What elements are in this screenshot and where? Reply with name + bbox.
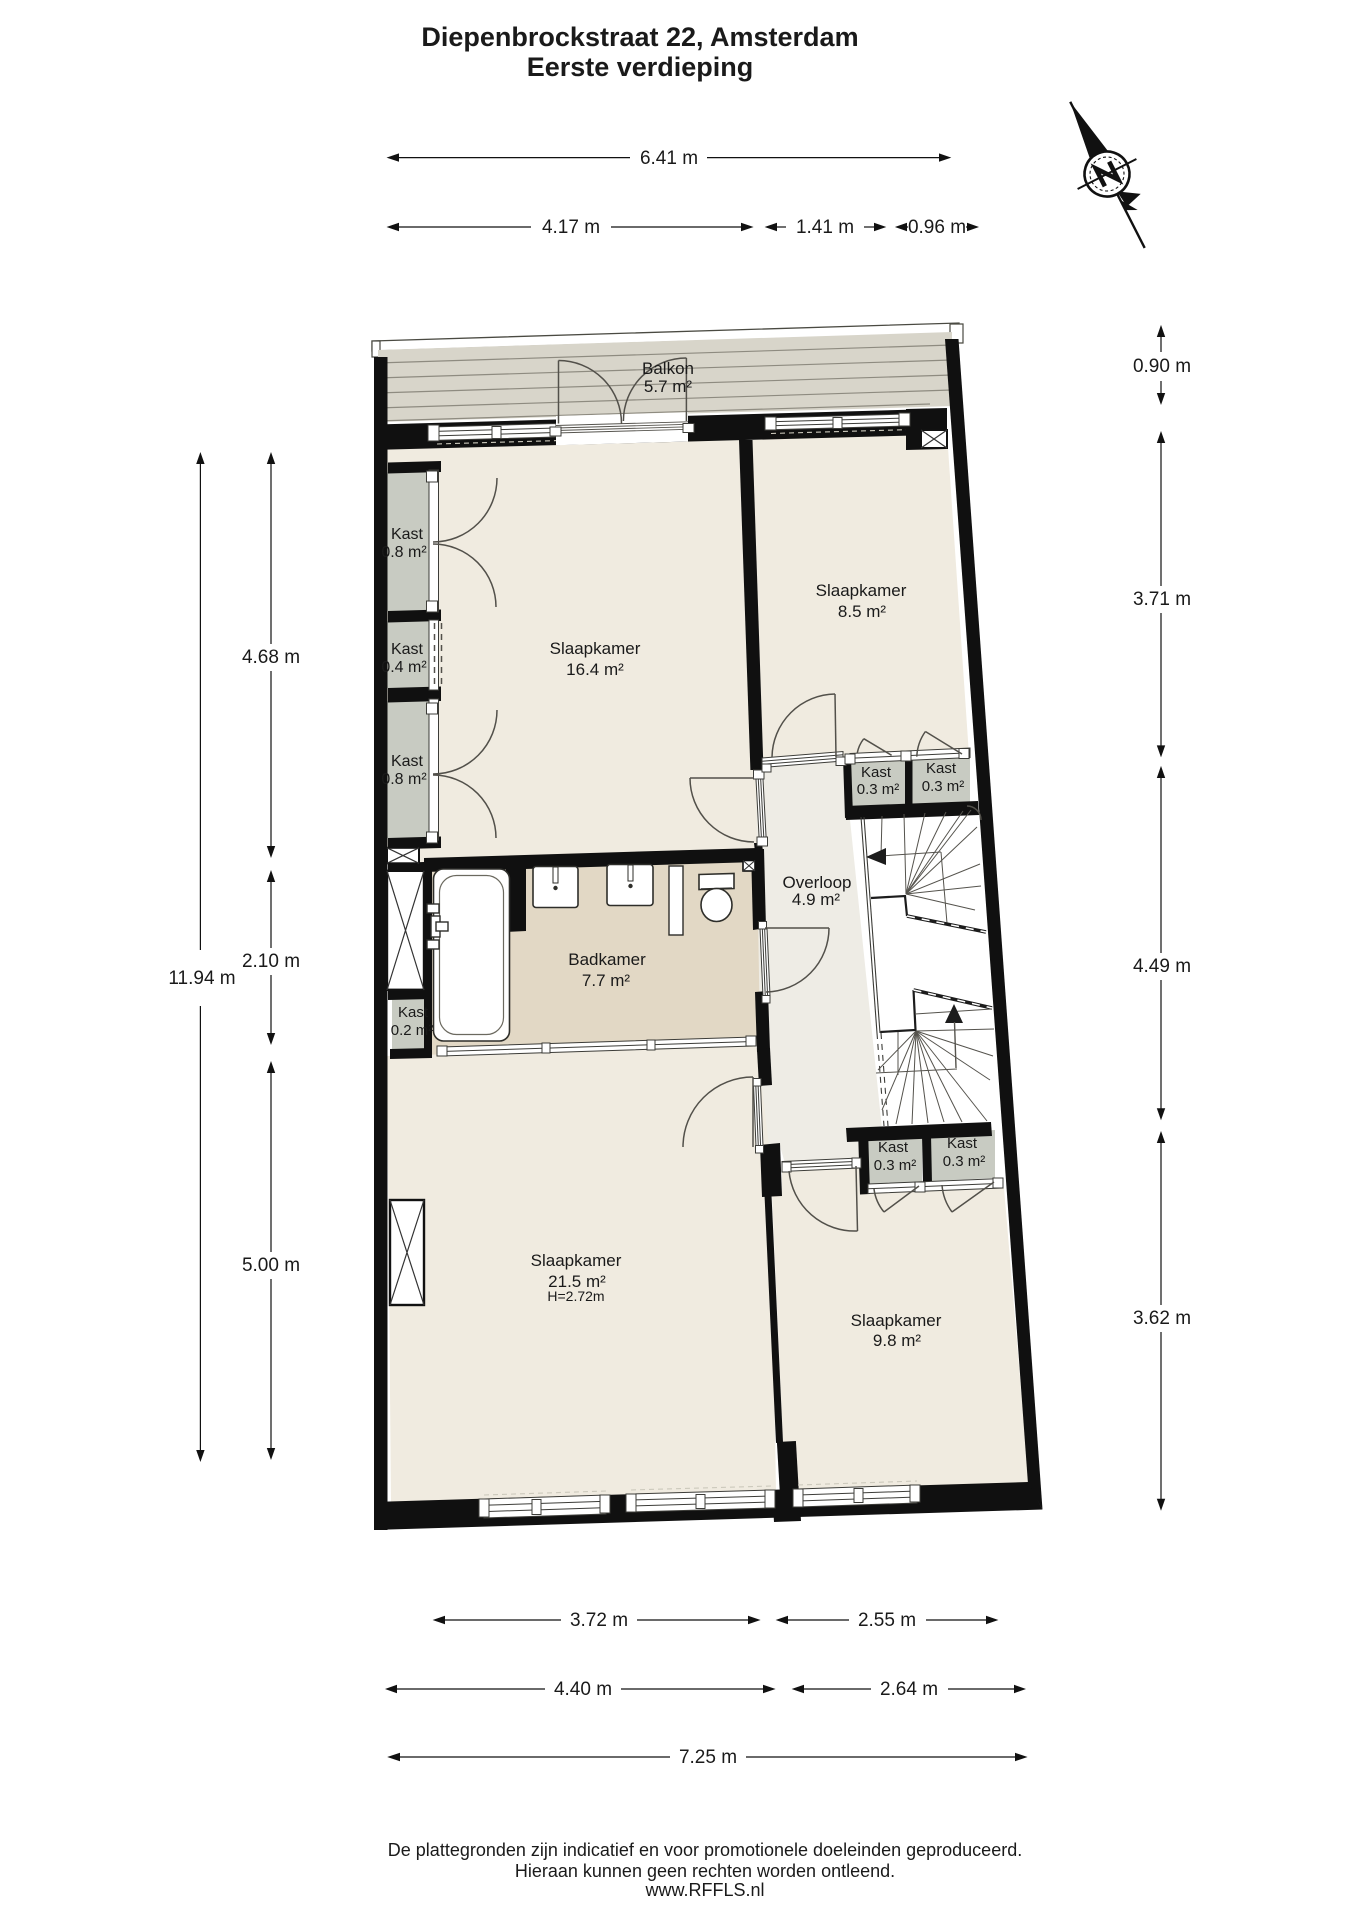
svg-text:Kast: Kast bbox=[926, 760, 957, 777]
svg-text:9.8 m²: 9.8 m² bbox=[873, 1331, 922, 1350]
svg-text:Kast: Kast bbox=[398, 1004, 429, 1021]
svg-text:16.4 m²: 16.4 m² bbox=[566, 660, 624, 679]
svg-text:2.10 m: 2.10 m bbox=[242, 951, 300, 972]
svg-text:1.41 m: 1.41 m bbox=[796, 217, 854, 238]
svg-text:0.3 m²: 0.3 m² bbox=[943, 1153, 986, 1170]
svg-text:0.2 m²: 0.2 m² bbox=[391, 1022, 434, 1039]
svg-text:Slaapkamer: Slaapkamer bbox=[550, 639, 641, 658]
svg-text:Hieraan kunnen geen rechten wo: Hieraan kunnen geen rechten worden ontle… bbox=[515, 1861, 895, 1881]
svg-text:H=2.72m: H=2.72m bbox=[547, 1288, 604, 1304]
svg-text:0.8 m²: 0.8 m² bbox=[381, 544, 427, 561]
svg-text:0.8 m²: 0.8 m² bbox=[381, 771, 427, 788]
svg-text:Slaapkamer: Slaapkamer bbox=[816, 581, 907, 600]
svg-text:3.62 m: 3.62 m bbox=[1133, 1308, 1191, 1329]
svg-text:6.41 m: 6.41 m bbox=[640, 148, 698, 169]
svg-text:4.49 m: 4.49 m bbox=[1133, 956, 1191, 977]
svg-text:Slaapkamer: Slaapkamer bbox=[851, 1311, 942, 1330]
svg-text:www.RFFLS.nl: www.RFFLS.nl bbox=[644, 1880, 764, 1900]
svg-text:0.90 m: 0.90 m bbox=[1133, 356, 1191, 377]
svg-text:Eerste verdieping: Eerste verdieping bbox=[527, 52, 754, 82]
svg-text:7.25 m: 7.25 m bbox=[679, 1747, 737, 1768]
svg-text:5.00 m: 5.00 m bbox=[242, 1255, 300, 1276]
svg-text:0.3 m²: 0.3 m² bbox=[874, 1157, 917, 1174]
svg-text:Kast: Kast bbox=[391, 526, 424, 543]
svg-text:2.64 m: 2.64 m bbox=[880, 1679, 938, 1700]
svg-text:0.4 m²: 0.4 m² bbox=[381, 659, 427, 676]
svg-text:Kast: Kast bbox=[947, 1135, 978, 1152]
svg-text:0.96 m: 0.96 m bbox=[908, 217, 966, 238]
svg-text:4.9 m²: 4.9 m² bbox=[792, 890, 841, 909]
svg-text:4.68 m: 4.68 m bbox=[242, 647, 300, 668]
svg-text:8.5 m²: 8.5 m² bbox=[838, 602, 887, 621]
svg-text:Slaapkamer: Slaapkamer bbox=[531, 1251, 622, 1270]
svg-text:Diepenbrockstraat 22, Amsterda: Diepenbrockstraat 22, Amsterdam bbox=[421, 22, 858, 52]
svg-text:4.40 m: 4.40 m bbox=[554, 1679, 612, 1700]
svg-text:Kast: Kast bbox=[391, 753, 424, 770]
svg-text:Kast: Kast bbox=[878, 1139, 909, 1156]
svg-text:7.7 m²: 7.7 m² bbox=[582, 971, 631, 990]
svg-text:Kast: Kast bbox=[391, 641, 424, 658]
svg-text:3.72 m: 3.72 m bbox=[570, 1610, 628, 1631]
svg-text:3.71 m: 3.71 m bbox=[1133, 589, 1191, 610]
svg-text:Badkamer: Badkamer bbox=[568, 950, 646, 969]
svg-text:Kast: Kast bbox=[861, 764, 892, 781]
svg-text:0.3 m²: 0.3 m² bbox=[857, 781, 900, 798]
svg-text:11.94 m: 11.94 m bbox=[168, 968, 235, 989]
svg-text:5.7 m²: 5.7 m² bbox=[644, 377, 693, 396]
svg-text:De plattegronden zijn indicati: De plattegronden zijn indicatief en voor… bbox=[388, 1840, 1022, 1860]
svg-text:0.3 m²: 0.3 m² bbox=[922, 778, 965, 795]
svg-text:2.55 m: 2.55 m bbox=[858, 1610, 916, 1631]
svg-text:4.17 m: 4.17 m bbox=[542, 217, 600, 238]
svg-text:Balkon: Balkon bbox=[642, 359, 694, 378]
